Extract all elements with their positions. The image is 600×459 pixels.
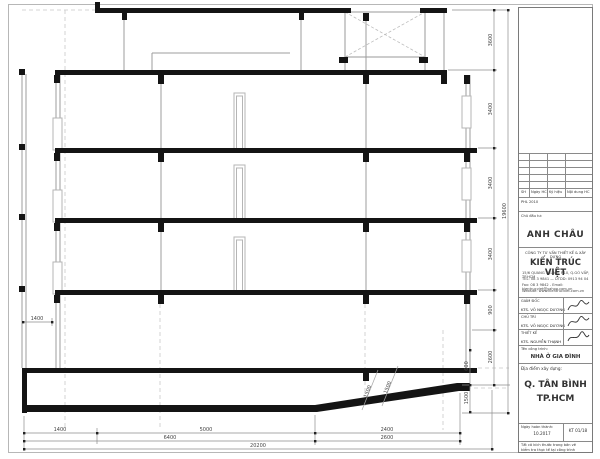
revision-header-date: Ngày HC bbox=[531, 190, 547, 194]
sheet-number: KT 01/18 bbox=[564, 429, 592, 434]
dim-label: 2600 bbox=[488, 351, 494, 364]
signer-role: THIẾT KẾ bbox=[521, 331, 537, 335]
dim-label: 1500 bbox=[464, 392, 470, 405]
dim-label: 19600 bbox=[502, 203, 508, 219]
dim-label: 2400 bbox=[381, 427, 394, 433]
building-section-drawing: 1400 5000 2400 6400 2600 20200 3600 3400… bbox=[0, 0, 600, 459]
dim-label: 6400 bbox=[164, 435, 177, 441]
signature-row: THIẾT KẾ KTS. NGUYỄN THẠNH bbox=[519, 330, 592, 345]
signer-name: KTS. VÕ NGỌC DƯƠNG bbox=[521, 324, 565, 328]
window-frames bbox=[53, 96, 471, 294]
dim-label: 600 bbox=[464, 361, 470, 371]
completion-label: Ngày hoàn thành: bbox=[521, 425, 553, 429]
dim-label: 20200 bbox=[250, 443, 266, 449]
drawing-sheet: 1400 5000 2400 6400 2600 20200 3600 3400… bbox=[0, 0, 600, 459]
dim-label: 1400 bbox=[31, 316, 44, 322]
dim-label: 900 bbox=[488, 305, 494, 315]
location-district: Q. TÂN BÌNH bbox=[519, 380, 592, 390]
signature-scribble-icon bbox=[564, 298, 592, 313]
dim-label: 3400 bbox=[488, 103, 494, 116]
dim-label: 1500 bbox=[383, 381, 393, 395]
project-label: Tên công trình: bbox=[521, 347, 548, 351]
slabs-and-beams bbox=[19, 2, 477, 413]
location-city: TP.HCM bbox=[519, 394, 592, 404]
revision-header-desc: Nội dung HC bbox=[567, 190, 590, 194]
note-line-1: Tất cả kích thước trong bản vẽ bbox=[521, 443, 576, 447]
ramp-foundation bbox=[22, 383, 470, 412]
note-line-2: kiểm tra thực tế tại công trình bbox=[521, 448, 575, 452]
dimension-lines bbox=[23, 10, 510, 451]
void-cross-box bbox=[345, 12, 425, 57]
signer-name: KTS. NGUYỄN THẠNH bbox=[521, 340, 561, 344]
owner-label: Chủ đầu tư: bbox=[521, 214, 542, 218]
signature-row: CHỦ TRÌ KTS. VÕ NGỌC DƯƠNG bbox=[519, 314, 592, 329]
wall-lines bbox=[22, 13, 470, 368]
signature-scribble-icon bbox=[564, 314, 592, 329]
owner-name: ANH CHÂU bbox=[519, 230, 592, 240]
signer-name: KTS. VÕ NGỌC DƯƠNG bbox=[521, 308, 565, 312]
title-block: SH Ngày HC Ký hiệu Nội dung HC PHL 2010 … bbox=[518, 7, 593, 453]
company-website: Website: www.kientrucviet.com.vn bbox=[522, 289, 590, 293]
revision-header-sh: SH bbox=[521, 190, 526, 194]
issue-note: PHL 2010 bbox=[521, 200, 538, 204]
dim-label: 5000 bbox=[200, 427, 213, 433]
signer-role: CHỦ TRÌ bbox=[521, 315, 536, 319]
dimension-ticks bbox=[22, 9, 509, 450]
signature-row: GIÁM ĐỐC KTS. VÕ NGỌC DƯƠNG bbox=[519, 298, 592, 313]
door-frames bbox=[234, 93, 245, 292]
completion-date: 10.2017 bbox=[521, 432, 563, 437]
dim-label: 1400 bbox=[54, 427, 67, 433]
project-name: NHÀ Ở GIA ĐÌNH bbox=[519, 354, 592, 360]
dim-label: 3600 bbox=[488, 34, 494, 47]
signature-scribble-icon bbox=[564, 330, 592, 345]
company-phone: TEL: 08 3 9841 — DTDD: 0913 94 04 bbox=[522, 277, 590, 281]
signer-role: GIÁM ĐỐC bbox=[521, 299, 540, 303]
location-label: Địa điểm xây dựng: bbox=[521, 367, 562, 372]
dim-label: 3400 bbox=[488, 248, 494, 261]
dim-label: 3400 bbox=[488, 177, 494, 190]
revision-header-sym: Ký hiệu bbox=[549, 190, 562, 194]
dim-label: 2600 bbox=[381, 435, 394, 441]
